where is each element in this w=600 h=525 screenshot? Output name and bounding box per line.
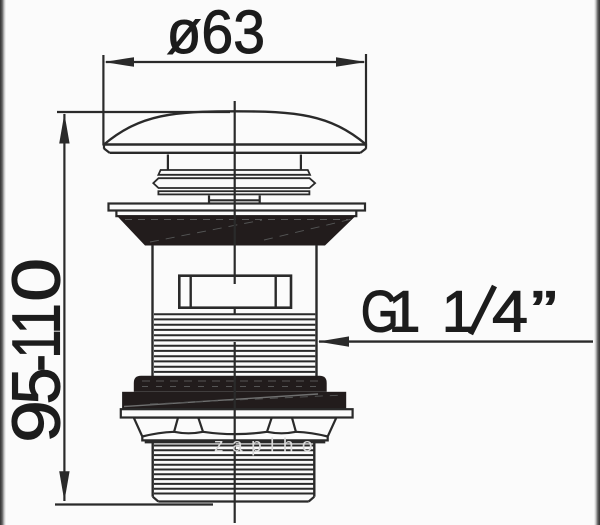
svg-text:1: 1 [442, 280, 474, 345]
svg-text:ø63: ø63 [167, 0, 266, 66]
svg-text:0: 0 [0, 258, 74, 302]
svg-text:zaplho: zaplho [214, 436, 321, 457]
svg-text:1: 1 [388, 280, 420, 345]
svg-text:1: 1 [0, 303, 74, 335]
svg-text:9: 9 [0, 400, 74, 443]
svg-text:5: 5 [0, 368, 74, 405]
svg-text:”: ” [531, 280, 557, 345]
svg-text:4: 4 [492, 280, 528, 345]
